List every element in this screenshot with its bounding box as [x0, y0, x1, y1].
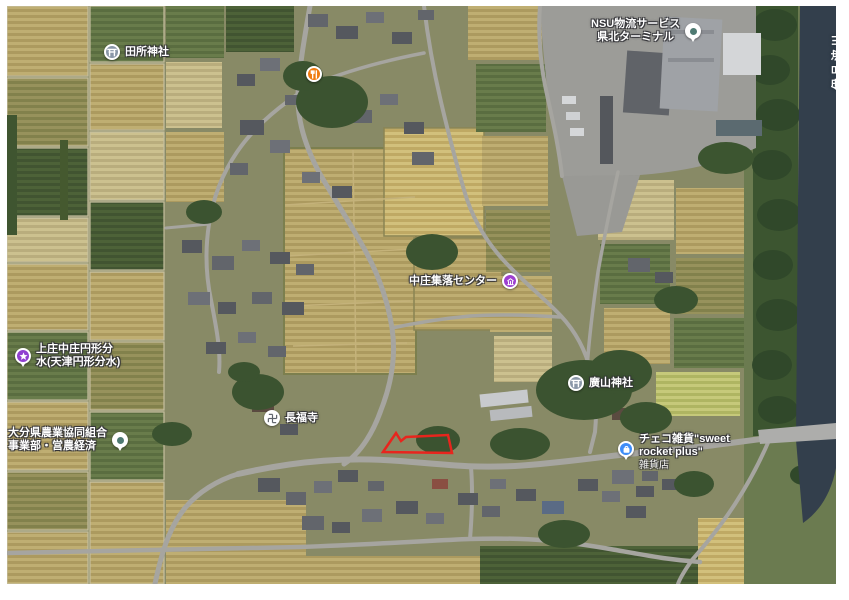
- poi-chofukuji-temple[interactable]: 長福寺: [264, 410, 318, 426]
- poi-ja-oita[interactable]: 大分県農業協同組合 事業部・営農経済: [8, 427, 128, 453]
- poi-tadokoro-shrine[interactable]: 田所神社: [104, 44, 169, 60]
- satellite-map-canvas[interactable]: 田所神社 NSU物流サービス 県北ターミナル 中庄集落センター: [7, 6, 836, 584]
- poi-restaurant[interactable]: [306, 66, 322, 82]
- poi-label: 廣山神社: [589, 377, 633, 390]
- shop-pin-icon: [618, 441, 634, 457]
- generic-place-icon: [685, 23, 701, 39]
- poi-hiroyama-shrine[interactable]: 廣山神社: [568, 375, 633, 391]
- poi-label: チェコ雑貨"sweet rocket plus" 雑貨店: [639, 433, 730, 472]
- poi-label: 長福寺: [285, 412, 318, 425]
- manji-temple-icon: [264, 410, 280, 426]
- poi-label: 中庄集落センター: [409, 275, 497, 288]
- satellite-terrain-art: [7, 6, 836, 584]
- poi-label: 上庄中庄円形分 水(天津円形分水): [36, 343, 120, 369]
- attraction-pin-icon: [15, 348, 31, 364]
- poi-enkei-bunsui[interactable]: 上庄中庄円形分 水(天津円形分水): [15, 343, 120, 369]
- poi-label: 大分県農業協同組合 事業部・営農経済: [8, 427, 107, 453]
- map-screenshot: 田所神社 NSU物流サービス 県北ターミナル 中庄集落センター: [0, 0, 849, 600]
- torii-shrine-icon: [104, 44, 120, 60]
- restaurant-icon: [306, 66, 322, 82]
- generic-place-icon: [112, 432, 128, 448]
- poi-sweet-rocket-shop[interactable]: チェコ雑貨"sweet rocket plus" 雑貨店: [618, 433, 730, 472]
- poi-label: NSU物流サービス 県北ターミナル: [591, 18, 680, 44]
- poi-nsu-terminal[interactable]: NSU物流サービス 県北ターミナル: [591, 18, 701, 44]
- torii-shrine-icon: [568, 375, 584, 391]
- civic-building-icon: [502, 273, 518, 289]
- poi-community-center[interactable]: 中庄集落センター: [409, 273, 518, 289]
- river-name-label: 伊呂波川: [829, 32, 836, 90]
- poi-label: 田所神社: [125, 46, 169, 59]
- poi-category: 雑貨店: [639, 459, 730, 472]
